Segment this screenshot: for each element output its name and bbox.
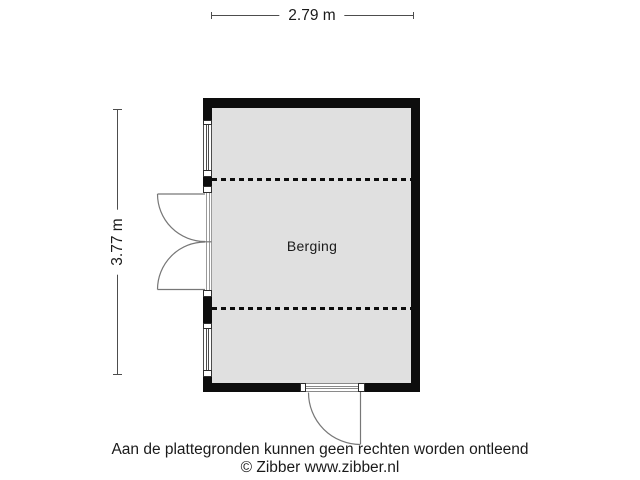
single-door-bottom — [309, 392, 361, 445]
door-arc — [309, 393, 361, 445]
width-dimension-tick-left — [211, 12, 212, 19]
width-dimension-tick-right — [413, 12, 414, 19]
room-label: Berging — [287, 238, 337, 254]
door-arc-bottom — [158, 242, 206, 290]
door-jamb — [203, 170, 212, 177]
height-dimension-tick-top — [113, 109, 122, 110]
floorplan-canvas: 2.79 m 3.77 m Berging — [0, 0, 640, 480]
roofline-dashed-top — [212, 178, 411, 181]
door-arc-top — [158, 194, 206, 242]
door-jamb — [203, 186, 212, 193]
height-dimension-label: 3.77 m — [109, 209, 127, 274]
height-dimension-tick-bottom — [113, 374, 122, 375]
window-left-top — [203, 125, 212, 170]
footer-disclaimer: Aan de plattegronden kunnen geen rechten… — [0, 441, 640, 459]
door-jamb — [203, 290, 212, 297]
footer: Aan de plattegronden kunnen geen rechten… — [0, 441, 640, 476]
window-left-bottom — [203, 329, 212, 370]
footer-copyright: © Zibber www.zibber.nl — [0, 459, 640, 477]
doorway-sill-left — [203, 193, 212, 290]
width-dimension-label: 2.79 m — [279, 7, 344, 25]
door-jamb — [358, 383, 365, 392]
doorway-sill-bottom — [306, 383, 358, 392]
door-jamb — [203, 370, 212, 377]
roofline-dashed-bottom — [212, 307, 411, 310]
